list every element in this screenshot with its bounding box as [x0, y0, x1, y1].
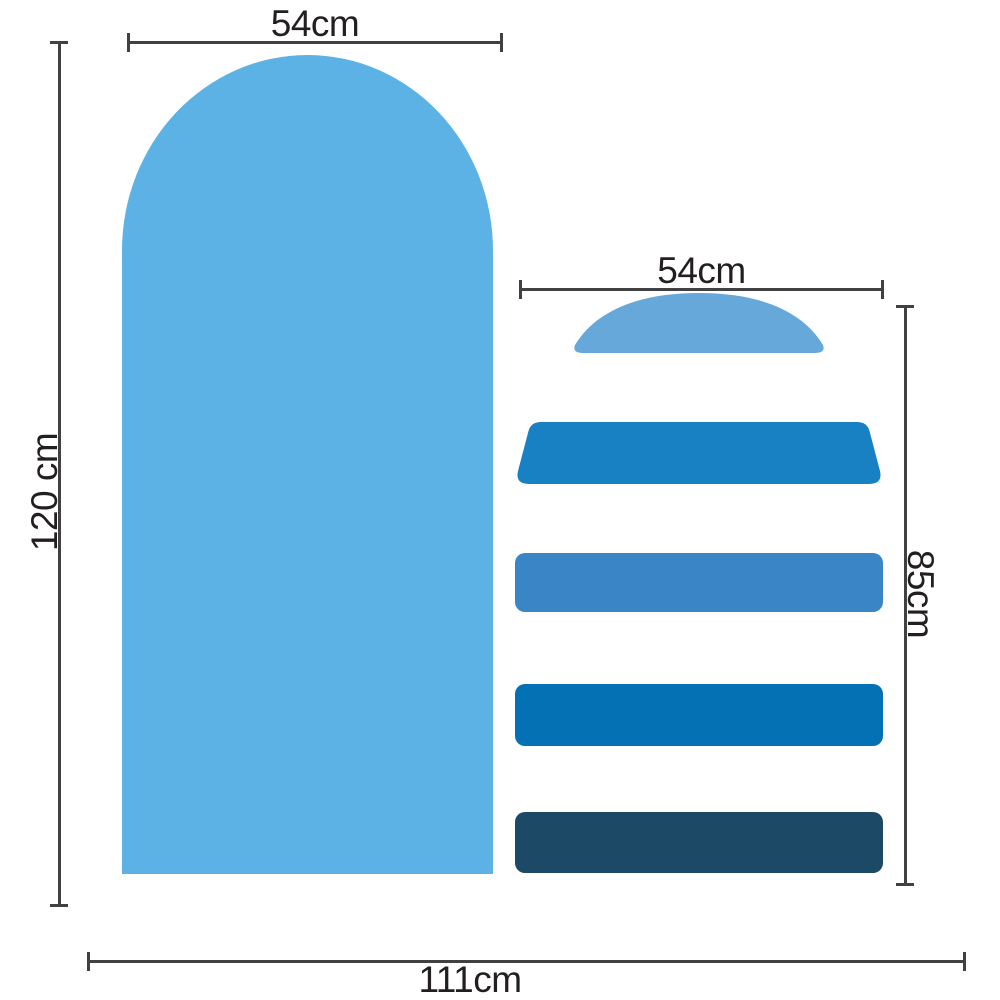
stack-height-top-cap — [896, 305, 914, 308]
dome-segment-shape — [568, 292, 830, 354]
arch-height-top-cap — [50, 41, 68, 44]
arch-height-label: 120 cm — [25, 382, 65, 602]
total-width-label: 111cm — [320, 960, 620, 1000]
total-width-left-tick — [87, 952, 90, 971]
rounded-bar-shape-2 — [515, 553, 883, 612]
total-width-right-tick — [963, 952, 966, 971]
product-dimensions-diagram: 54cm 120 cm 54cm 85cm 111cm — [0, 0, 1000, 1000]
stack-height-bottom-cap — [896, 883, 914, 886]
arch-width-label: 54cm — [128, 4, 502, 44]
arch-height-bottom-cap — [50, 904, 68, 907]
stack-width-label: 54cm — [520, 251, 883, 291]
dome-segment-path — [574, 293, 823, 353]
arch-panel-shape — [122, 55, 493, 874]
trapezoid-bar-shape — [515, 422, 883, 484]
trapezoid-bar-path — [517, 422, 880, 484]
stack-height-label: 85cm — [900, 484, 940, 704]
rounded-bar-shape-3 — [515, 684, 883, 746]
rounded-bar-shape-4 — [515, 812, 883, 873]
